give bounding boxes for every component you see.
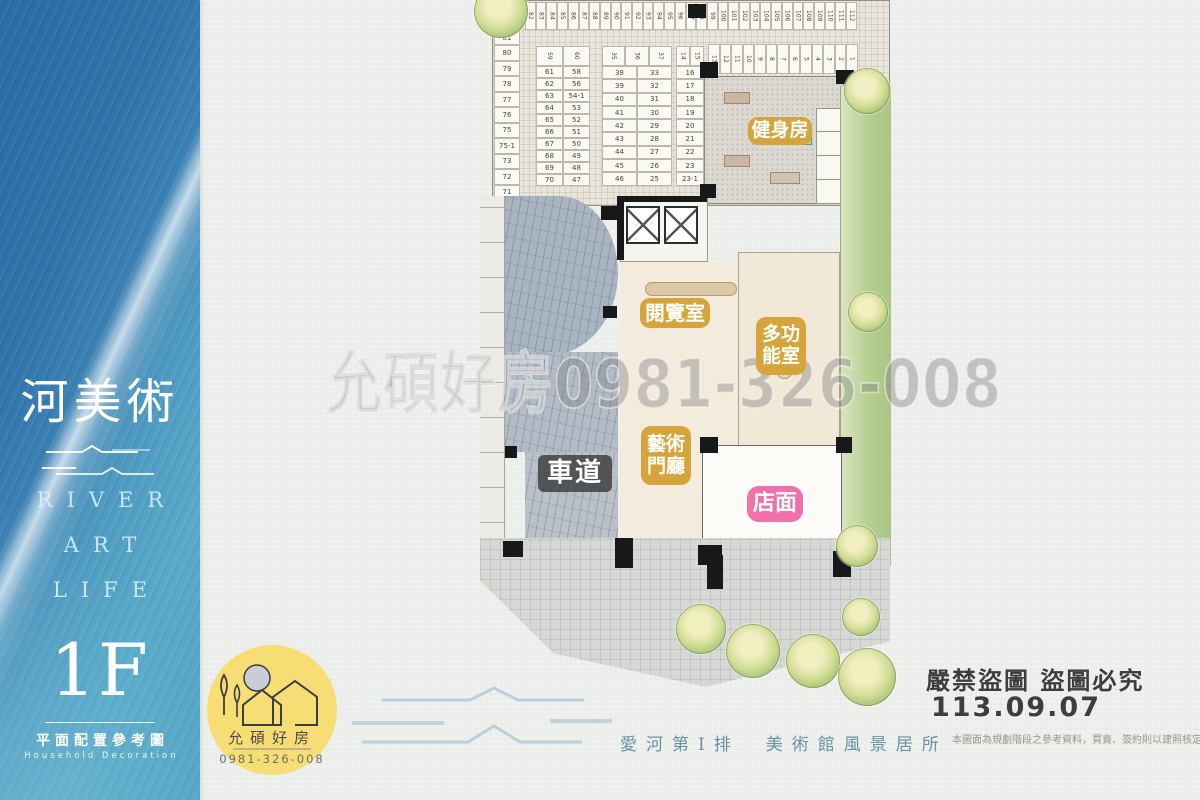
room-label-reading: 閱覽室 <box>640 298 710 328</box>
parking-cell: 112 <box>846 2 857 30</box>
parking-cell: 43 <box>602 132 637 145</box>
parking-cell: 94 <box>653 2 664 30</box>
parking-cell: 4625 <box>602 172 672 185</box>
parking-cell: 35 <box>602 46 625 66</box>
date-text: 113.09.07 <box>926 692 1106 723</box>
parking-cell: 4229 <box>602 119 672 132</box>
parking-cell: 76 <box>494 107 520 122</box>
parking-cell: 22 <box>676 146 704 159</box>
parking-cell: 91 <box>621 2 632 30</box>
divider-line <box>45 722 155 723</box>
parking-cell: 7047 <box>536 174 590 186</box>
parking-cell: 59 <box>536 46 563 66</box>
parking-cell: 108 <box>803 2 814 30</box>
room-label-art-lobby: 藝術 門廳 <box>641 426 691 485</box>
parking-cell: 37 <box>649 46 672 66</box>
parking-cell: 52 <box>563 114 590 126</box>
river-text: RIVER <box>0 488 200 512</box>
parking-cell: 11 <box>731 44 743 74</box>
tree-icon <box>838 648 896 706</box>
parking-cell: 4526 <box>602 159 672 172</box>
parking-cell: 7 <box>777 44 789 74</box>
parking-cell: 103 <box>750 2 761 30</box>
parking-cell: 67 <box>536 138 563 150</box>
parking-cell: 95 <box>664 2 675 30</box>
parking-cell: 4328 <box>602 132 672 145</box>
room-label-store: 店面 <box>747 486 803 522</box>
parking-cell: 6849 <box>536 150 590 162</box>
parking-cell: 83 <box>536 2 547 30</box>
parking-cell: 93 <box>643 2 654 30</box>
parking-cell: 42 <box>602 119 637 132</box>
parking-block-1-header: 5960 <box>536 46 590 66</box>
parking-cell: 84 <box>546 2 557 30</box>
parking-cell: 56 <box>563 78 590 90</box>
parking-cell: 3932 <box>602 79 672 92</box>
parking-cell: 58 <box>563 66 590 78</box>
parking-cell: 21 <box>676 132 704 145</box>
parking-cell: 30 <box>637 106 672 119</box>
parking-cell: 80 <box>494 45 520 60</box>
parking-cell: 40 <box>602 93 637 106</box>
reading-counter-icon <box>645 282 737 296</box>
elevator-icon <box>664 206 698 244</box>
tree-icon <box>836 525 878 567</box>
parking-cell: 86 <box>568 2 579 30</box>
parking-cell: 14 <box>676 46 690 66</box>
parking-cell: 4 <box>812 44 824 74</box>
parking-cell: 5 <box>800 44 812 74</box>
sidebar-hero: 河美術 RIVER ART LIFE 1F 平面配置參考圖 Household … <box>0 0 200 800</box>
wall-block <box>617 202 624 260</box>
parking-block-1: 5960 615862566354-1645365526651675068496… <box>536 46 590 186</box>
parking-cell: 39 <box>602 79 637 92</box>
parking-cell: 32 <box>637 79 672 92</box>
parking-cell: 107 <box>793 2 804 30</box>
parking-cell: 66 <box>536 126 563 138</box>
wall-block <box>836 437 852 453</box>
room-label-gym: 健身房 <box>748 117 812 145</box>
wall-block <box>700 62 718 78</box>
parking-cell: 6651 <box>536 126 590 138</box>
parking-cell: 47 <box>563 174 590 186</box>
floor-label: 1F <box>0 628 200 712</box>
gym-mat-icon <box>770 172 800 184</box>
room-label-multipurpose: 多功 能室 <box>756 317 806 375</box>
parking-cell: 46 <box>602 172 637 185</box>
parking-cell: 92 <box>632 2 643 30</box>
elevator-icon <box>626 206 660 244</box>
parking-cell: 9 <box>754 44 766 74</box>
parking-cell: 65 <box>536 114 563 126</box>
parking-cell: 73 <box>494 154 520 169</box>
caption-en: Household Decoration <box>0 751 200 761</box>
parking-cell: 6453 <box>536 102 590 114</box>
parking-cell: 6552 <box>536 114 590 126</box>
wall-block <box>601 206 617 220</box>
parking-cell: 25 <box>637 172 672 185</box>
parking-cell: 26 <box>637 159 672 172</box>
parking-cell: 44 <box>602 146 637 159</box>
parking-cell: 8 <box>766 44 778 74</box>
parking-cell: 88 <box>589 2 600 30</box>
wall-block <box>615 538 633 568</box>
parking-cell: 104 <box>760 2 771 30</box>
parking-cell: 54-1 <box>563 90 590 102</box>
parking-cell: 4130 <box>602 106 672 119</box>
room-label-multipurpose-line2: 能室 <box>762 346 800 368</box>
parking-cell: 101 <box>728 2 739 30</box>
wall-block <box>505 446 517 458</box>
parking-cell: 4427 <box>602 146 672 159</box>
parking-cell: 100 <box>718 2 729 30</box>
parking-cell: 51 <box>563 126 590 138</box>
parking-cell: 36 <box>625 46 648 66</box>
watermark-text: 允碩好房0981-326-008 <box>326 330 1002 427</box>
parking-block-3-rows: 161718192021222323-1 <box>676 66 704 186</box>
parking-cell: 23 <box>676 159 704 172</box>
parking-cell: 17 <box>676 79 704 92</box>
parking-cell: 111 <box>835 2 846 30</box>
tagline-text: 愛河第Ⅰ排 美術館風景居所 <box>620 730 948 755</box>
parking-cell: 89 <box>600 2 611 30</box>
parking-cell: 6750 <box>536 138 590 150</box>
parking-cell: 87 <box>579 2 590 30</box>
parking-cell: 41 <box>602 106 637 119</box>
parking-cell: 6158 <box>536 66 590 78</box>
anti-piracy-warning: 嚴禁盜圖 盜圖必究 <box>926 661 1144 696</box>
parking-block-1-rows: 615862566354-164536552665167506849694870… <box>536 66 590 186</box>
parking-cell: 69 <box>536 162 563 174</box>
parking-cell: 20 <box>676 119 704 132</box>
parking-cell: 64 <box>536 102 563 114</box>
parking-block-2: 353637 383339324031413042294328442745264… <box>602 46 672 186</box>
waves-decoration-icon <box>352 678 632 758</box>
parking-cell: 61 <box>536 66 563 78</box>
parking-cell: 48 <box>563 162 590 174</box>
parking-cell: 50 <box>563 138 590 150</box>
gym-bench-icon <box>724 92 750 104</box>
gym-bench-icon <box>724 155 750 167</box>
parking-cell: 72 <box>494 169 520 184</box>
room-label-multipurpose-line1: 多功 <box>762 324 800 346</box>
parking-cell: 10 <box>743 44 755 74</box>
parking-cell: 31 <box>637 93 672 106</box>
parking-block-2-rows: 383339324031413042294328442745264625 <box>602 66 672 186</box>
parking-cell: 68 <box>536 150 563 162</box>
tree-icon <box>726 624 780 678</box>
parking-cell: 78 <box>494 76 520 91</box>
parking-block-2-header: 353637 <box>602 46 672 66</box>
wall-block <box>603 306 617 318</box>
parking-cell: 3 <box>823 44 835 74</box>
tree-icon <box>676 604 726 654</box>
room-label-art-lobby-line2: 門廳 <box>647 456 685 478</box>
parking-cell: 53 <box>563 102 590 114</box>
parking-cell: 109 <box>814 2 825 30</box>
parking-cell: 49 <box>563 150 590 162</box>
parking-cell: 3833 <box>602 66 672 79</box>
parking-cell: 75-1 <box>494 138 520 153</box>
room-label-art-lobby-line1: 藝術 <box>647 434 685 456</box>
parking-cell: 6 <box>789 44 801 74</box>
parking-cell: 110 <box>825 2 836 30</box>
parking-cell: 63 <box>536 90 563 102</box>
parking-cell: 45 <box>602 159 637 172</box>
parking-cell: 6948 <box>536 162 590 174</box>
parking-cell: 6354-1 <box>536 90 590 102</box>
logo-phone: 0981-326-008 <box>219 752 324 766</box>
art-text: ART <box>0 533 200 557</box>
parking-cell: 28 <box>637 132 672 145</box>
caption-zh: 平面配置參考圖 <box>0 730 200 750</box>
tree-icon <box>848 292 888 332</box>
room-label-driveway: 車道 <box>538 455 612 492</box>
logo-name: 允碩好房 <box>228 729 316 747</box>
sun-icon <box>244 665 270 691</box>
wave-ornament-icon <box>42 438 158 482</box>
wall-block <box>688 4 706 18</box>
project-title: 河美術 <box>0 362 200 432</box>
parking-cell: 106 <box>782 2 793 30</box>
parking-cell: 38 <box>602 66 637 79</box>
parking-cell: 4031 <box>602 93 672 106</box>
agency-logo: 允碩好房 0981-326-008 <box>207 645 337 775</box>
life-text: LIFE <box>0 578 200 602</box>
parking-cell: 77 <box>494 92 520 107</box>
parking-cell: 70 <box>536 174 563 186</box>
wall-block <box>700 437 718 453</box>
parking-cell: 6256 <box>536 78 590 90</box>
parking-cell: 33 <box>637 66 672 79</box>
parking-cell: 12 <box>720 44 732 74</box>
parking-cell: 60 <box>563 46 590 66</box>
parking-cell: 62 <box>536 78 563 90</box>
tree-icon <box>842 598 880 636</box>
tree-icon <box>844 68 890 114</box>
parking-cell: 18 <box>676 93 704 106</box>
poster-canvas: 河美術 RIVER ART LIFE 1F 平面配置參考圖 Household … <box>0 0 1200 800</box>
tree-icon <box>786 634 840 688</box>
parking-left-col: 8180797877767575-1737271 <box>494 30 520 200</box>
parking-cell: 27 <box>637 146 672 159</box>
parking-cell: 99 <box>707 2 718 30</box>
parking-cell: 79 <box>494 61 520 76</box>
wall-block <box>707 555 723 589</box>
wall-block <box>617 196 707 202</box>
parking-cell: 96 <box>675 2 686 30</box>
parking-cell: 29 <box>637 119 672 132</box>
wall-block <box>503 541 523 557</box>
parking-cell: 102 <box>739 2 750 30</box>
parking-cell: 75 <box>494 123 520 138</box>
disclaimer-text: 本圖面為規劃階段之參考資料，買賣、簽約則以建照核定之圖 <box>952 731 1200 746</box>
parking-cell: 85 <box>557 2 568 30</box>
parking-cell: 105 <box>771 2 782 30</box>
parking-cell: 90 <box>611 2 622 30</box>
parking-cell: 19 <box>676 106 704 119</box>
